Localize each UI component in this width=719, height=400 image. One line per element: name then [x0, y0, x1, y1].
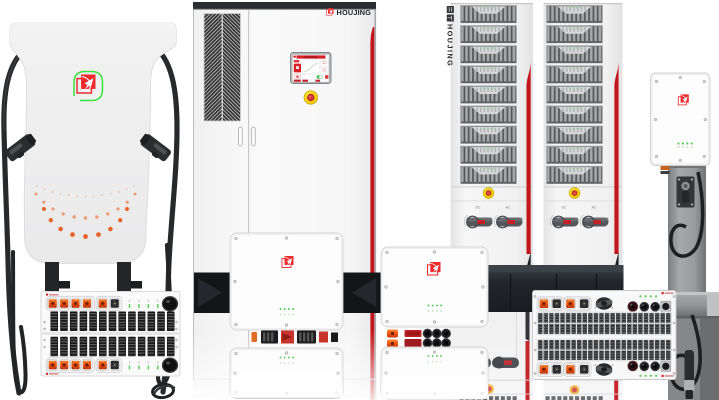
- svg-text:HOUJING: HOUJING: [337, 8, 372, 17]
- svg-text:DC: DC: [562, 206, 567, 210]
- svg-text:AC: AC: [592, 206, 597, 210]
- svg-text:HOUJING: HOUJING: [445, 24, 454, 67]
- svg-text:DC: DC: [476, 206, 481, 210]
- svg-text:AC: AC: [506, 206, 511, 210]
